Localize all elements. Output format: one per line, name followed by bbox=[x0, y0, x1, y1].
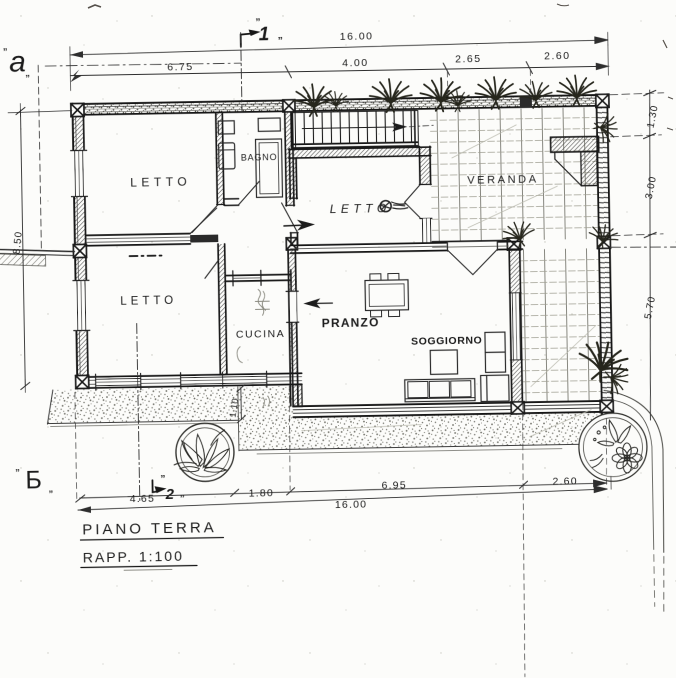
svg-text:”: ” bbox=[255, 17, 260, 28]
svg-text:”: ” bbox=[278, 36, 283, 47]
svg-text:LETTO: LETTO bbox=[130, 175, 191, 190]
svg-text:”: ” bbox=[160, 474, 165, 485]
svg-text:16.00: 16.00 bbox=[335, 499, 367, 512]
svg-text:PRANZO: PRANZO bbox=[322, 315, 380, 330]
svg-text:LETTO: LETTO bbox=[120, 295, 177, 308]
svg-text:6.75: 6.75 bbox=[167, 61, 194, 73]
svg-text:”: ” bbox=[25, 73, 30, 83]
svg-text:2.60: 2.60 bbox=[552, 475, 577, 487]
svg-text:RAPP. 1:100: RAPP. 1:100 bbox=[83, 548, 184, 566]
svg-text:VERANDA: VERANDA bbox=[467, 173, 539, 186]
svg-text:16.00: 16.00 bbox=[340, 30, 374, 43]
svg-text:2.60: 2.60 bbox=[544, 50, 571, 62]
svg-text:SOGGIORNO: SOGGIORNO bbox=[411, 334, 483, 347]
svg-text:”: ” bbox=[3, 47, 8, 57]
svg-text:1.80: 1.80 bbox=[249, 487, 274, 499]
svg-text:2.65: 2.65 bbox=[455, 53, 482, 65]
svg-text:”: ” bbox=[49, 489, 54, 499]
svg-text:4.65: 4.65 bbox=[130, 493, 155, 505]
svg-text:”: ” bbox=[15, 468, 20, 478]
svg-text:4.00: 4.00 bbox=[342, 57, 369, 69]
svg-text:Б: Б bbox=[25, 466, 42, 494]
svg-text:6.95: 6.95 bbox=[381, 479, 406, 491]
svg-text:CUCINA: CUCINA bbox=[236, 328, 285, 341]
svg-text:PIANO TERRA: PIANO TERRA bbox=[82, 519, 217, 538]
svg-text:2: 2 bbox=[165, 486, 175, 503]
svg-text:BAGNO: BAGNO bbox=[241, 152, 278, 163]
svg-text:a: a bbox=[9, 45, 26, 78]
